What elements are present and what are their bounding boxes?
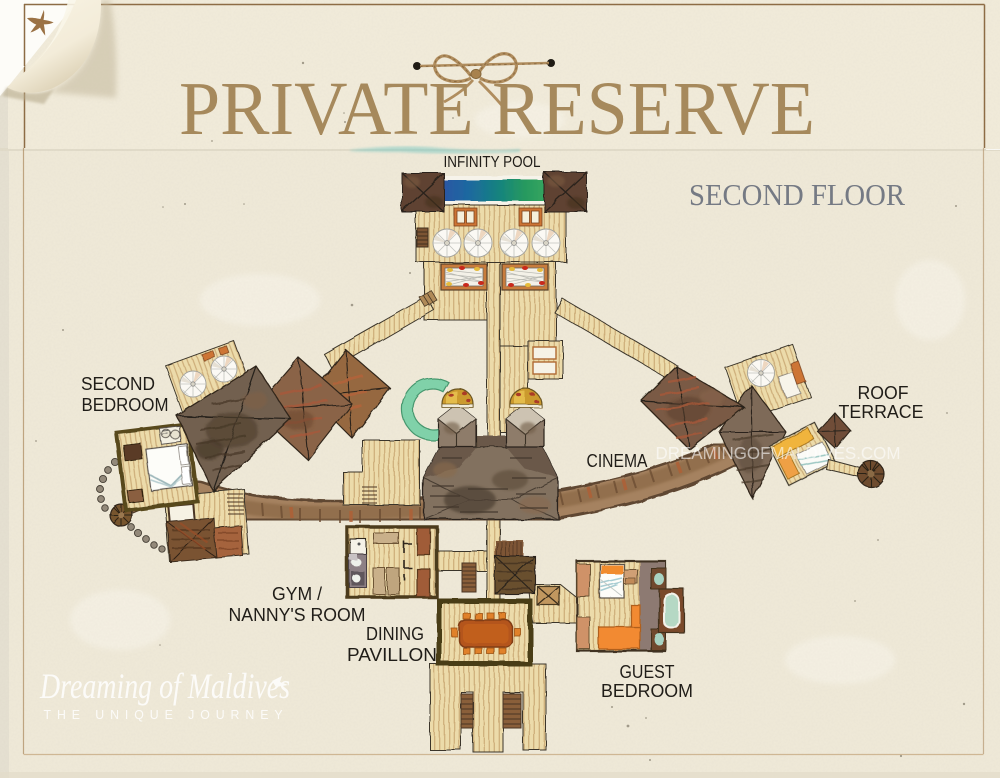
svg-text:SECOND FLOOR: SECOND FLOOR (689, 177, 905, 212)
svg-text:TERRACE: TERRACE (839, 402, 924, 422)
svg-text:PRIVATE RESERVE: PRIVATE RESERVE (179, 67, 815, 151)
svg-text:THE UNIQUE JOURNEY: THE UNIQUE JOURNEY (44, 708, 289, 722)
svg-text:Dreaming of Maldives: Dreaming of Maldives (39, 666, 290, 706)
svg-text:INFINITY POOL: INFINITY POOL (444, 154, 541, 171)
svg-text:BEDROOM: BEDROOM (82, 395, 169, 415)
svg-text:DINING: DINING (366, 624, 424, 644)
svg-text:ROOF: ROOF (858, 383, 909, 403)
svg-text:GUEST: GUEST (620, 662, 675, 682)
svg-text:DREAMINGOFMALDIVES.COM: DREAMINGOFMALDIVES.COM (656, 443, 901, 463)
svg-text:CINEMA: CINEMA (587, 451, 648, 471)
svg-text:NANNY'S ROOM: NANNY'S ROOM (229, 605, 366, 625)
svg-text:BEDROOM: BEDROOM (601, 681, 693, 701)
svg-text:GYM /: GYM / (272, 584, 322, 604)
svg-text:PAVILLON: PAVILLON (347, 645, 437, 665)
svg-text:SECOND: SECOND (81, 374, 155, 394)
